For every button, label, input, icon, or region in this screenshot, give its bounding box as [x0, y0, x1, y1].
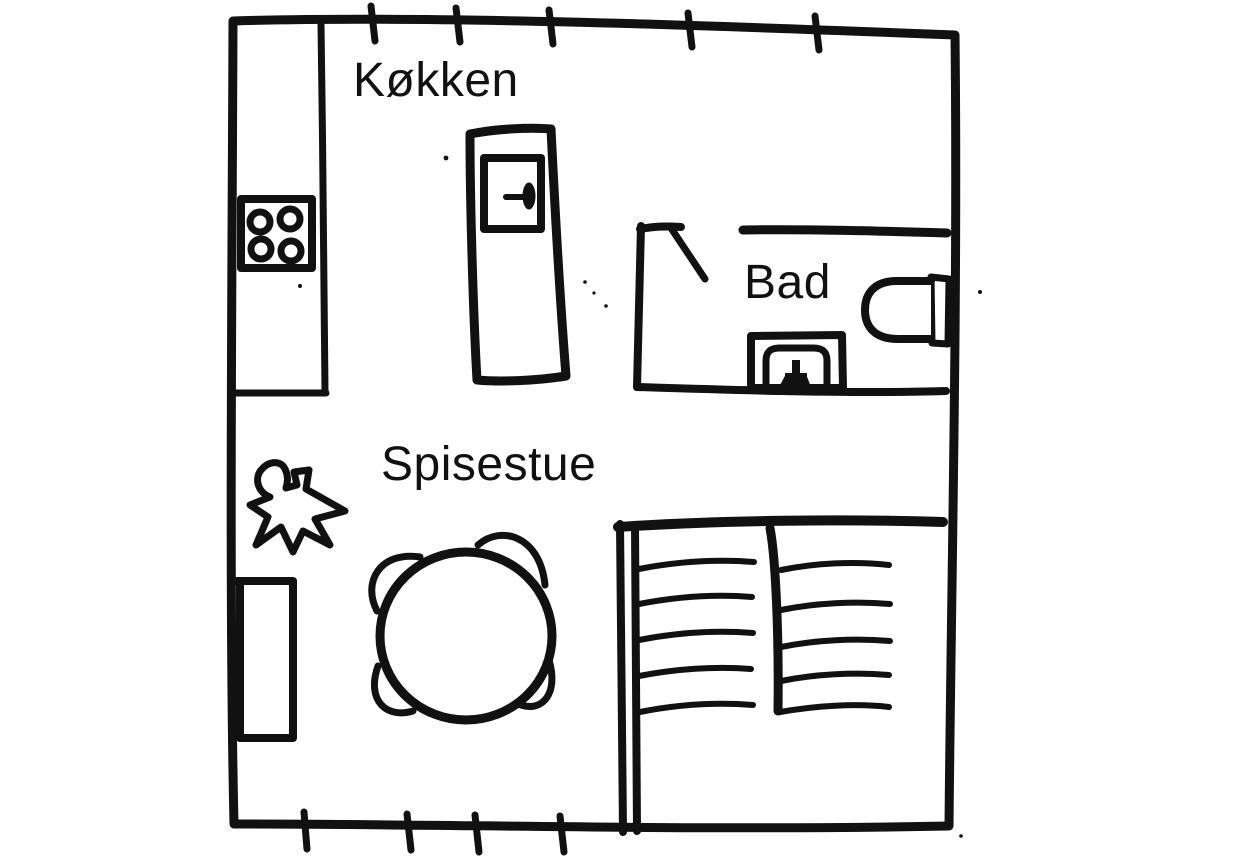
toilet-icon [865, 277, 949, 344]
stove-icon [241, 199, 312, 268]
toilet-bowl [865, 281, 931, 339]
tick-mark [560, 816, 564, 852]
door-swing-icon [671, 228, 705, 279]
stair-tread [781, 674, 889, 681]
sideboard-icon [233, 581, 293, 738]
room-label-kitchen: Køkken [353, 57, 519, 105]
washbasin-icon [751, 335, 843, 388]
tick-mark [304, 812, 307, 849]
scan-speck [604, 304, 608, 308]
tick-mark [549, 10, 553, 44]
scan-speck [959, 834, 963, 838]
scan-speck [978, 290, 982, 294]
stair-stringer [620, 524, 623, 832]
bottom-wall-tick-marks [304, 812, 564, 852]
scan-speck [298, 284, 302, 288]
stair-tread [781, 603, 890, 610]
staircase-icon [618, 520, 943, 832]
stair-tread [640, 704, 753, 712]
tick-mark [688, 13, 692, 47]
stair-tread [639, 632, 753, 640]
stair-tread [781, 640, 890, 647]
door-knob [523, 183, 536, 210]
stair-stringer [635, 526, 637, 831]
starburst-icon [250, 463, 345, 552]
stair-tread [639, 668, 751, 676]
toilet-tank [931, 277, 949, 344]
tick-mark [407, 814, 411, 850]
stair-tread [639, 561, 754, 569]
bathroom-left-wall [637, 226, 641, 387]
counter-edge [321, 24, 325, 392]
stair-tread [781, 563, 889, 570]
room-label-dining-room: Spisestue [381, 441, 596, 489]
room-label-bathroom: Bad [744, 259, 831, 307]
stair-divider [770, 528, 778, 711]
stair-top-wall [618, 520, 943, 527]
stair-treads-right [780, 563, 890, 712]
stair-tread [780, 705, 889, 712]
scan-speck [592, 291, 595, 294]
stair-treads-left [639, 561, 754, 712]
floorplan-drawing [0, 0, 1240, 860]
bathroom-top-wall [743, 230, 947, 233]
scan-speck [583, 280, 587, 284]
dining-table-icon [380, 552, 552, 720]
floorplan-sketch: Køkken Bad Spisestue [0, 0, 1240, 860]
tick-mark [371, 6, 375, 41]
door-icon [470, 128, 566, 381]
tick-mark [456, 8, 460, 42]
sideboard-body [240, 581, 293, 738]
stair-tread [639, 596, 752, 604]
tick-mark [475, 815, 479, 852]
scan-speck [444, 156, 449, 161]
tick-mark [815, 16, 819, 50]
